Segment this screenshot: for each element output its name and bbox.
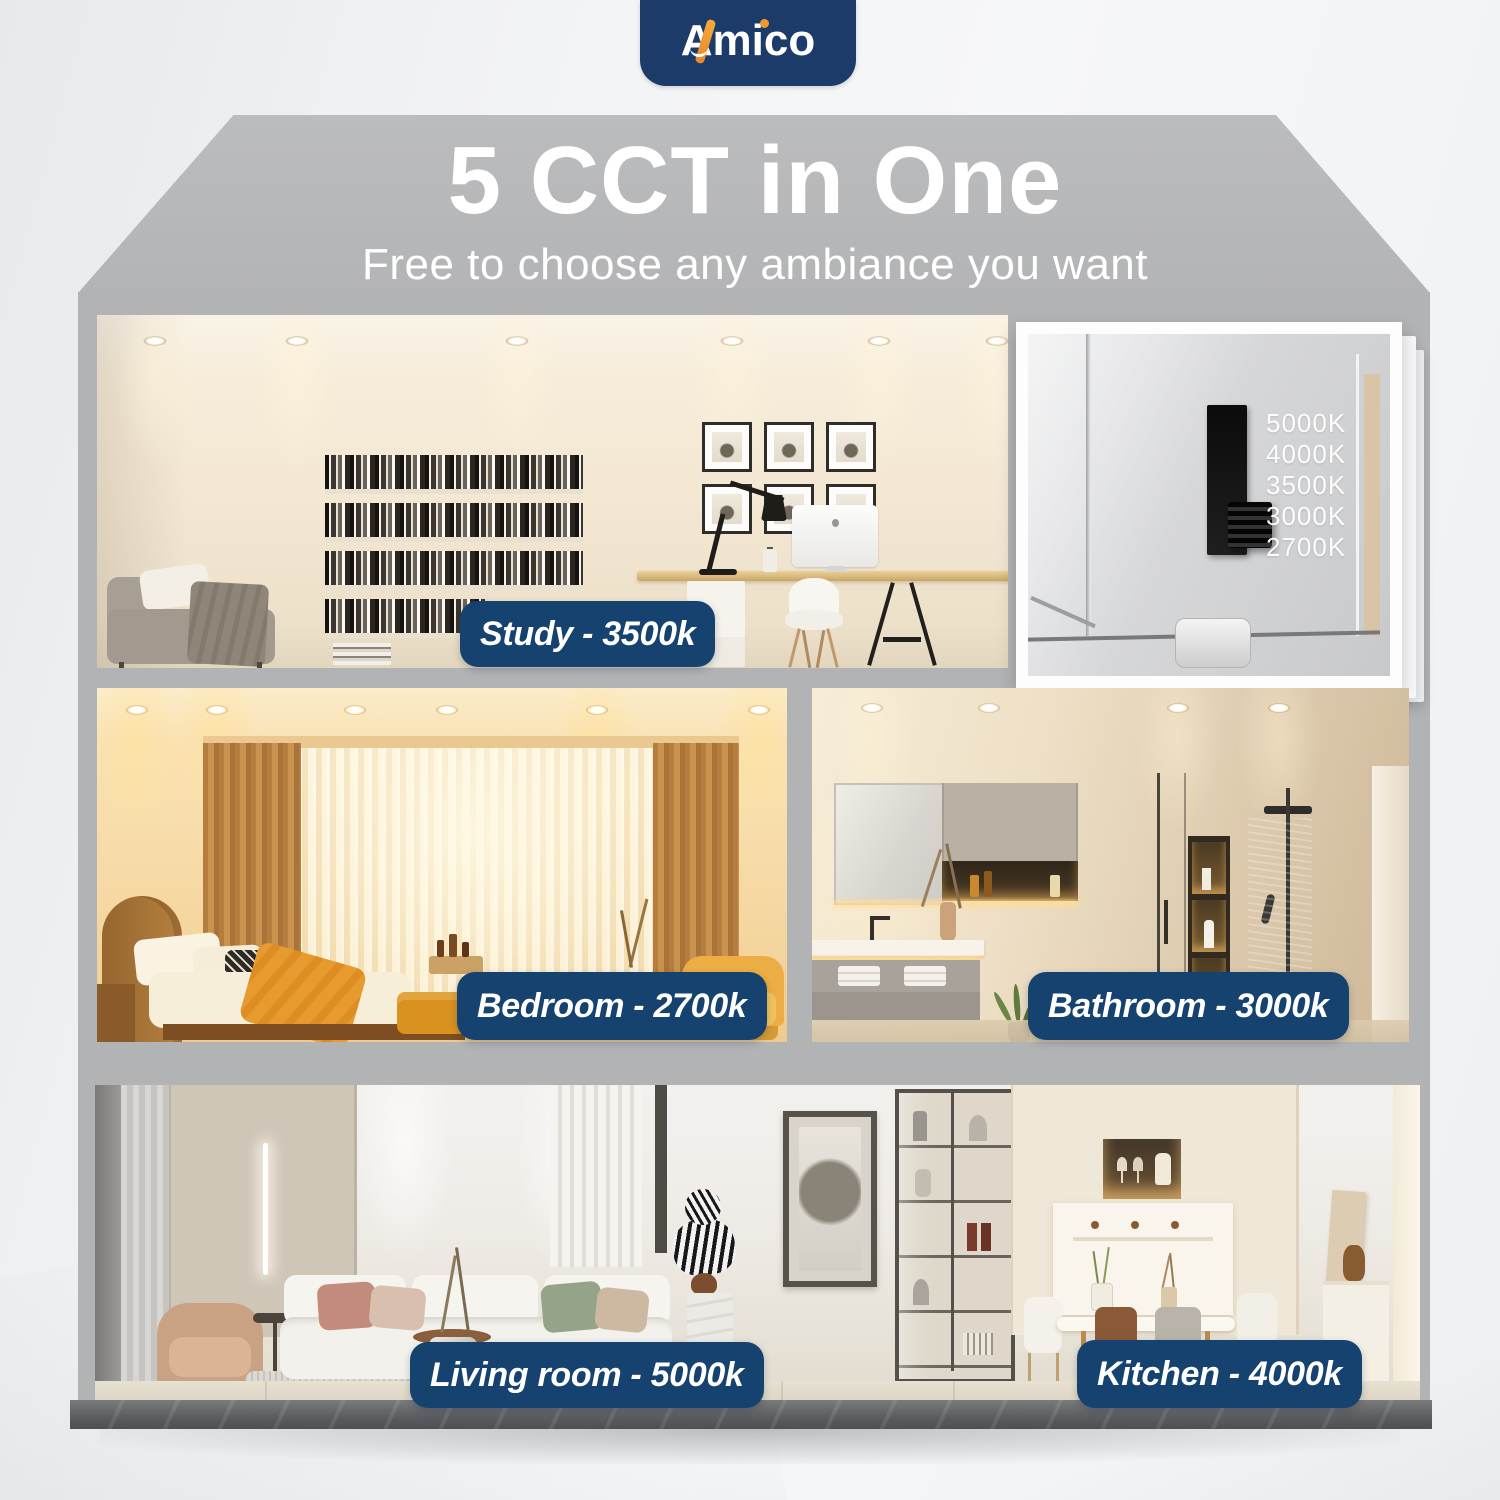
wine-glass: [1117, 1157, 1127, 1171]
wall-art-sketch: [799, 1127, 861, 1271]
wine-glass-stem: [1121, 1171, 1123, 1183]
bookshelf-row: [325, 551, 583, 590]
wall-frame: [826, 422, 876, 472]
towel-stack: [838, 966, 880, 986]
dining-table-top: [1057, 1317, 1235, 1331]
cct-option-list: 5000K 4000K 3500K 3000K 2700K: [1266, 408, 1376, 563]
bathroom-cabinet-doors: [942, 783, 1078, 861]
monitor-apple-logo: [832, 519, 839, 527]
cabinet-item: [963, 1333, 993, 1355]
study-sofa-leg: [257, 662, 262, 668]
chair-leg: [788, 628, 801, 668]
wall-frame: [702, 422, 752, 472]
kitchen-display-cabinet: [895, 1089, 1015, 1383]
niche-bottle: [1202, 868, 1211, 890]
living-slat-panel: [550, 1085, 642, 1267]
kitchen-lighted-niche: [1103, 1139, 1181, 1199]
panel-flower-stem: [1102, 1247, 1110, 1287]
wall-sconce-light: [263, 1143, 268, 1275]
chair-leg: [816, 630, 826, 668]
panel-hook: [1091, 1221, 1099, 1229]
living-room-label: Living room - 5000k: [410, 1342, 764, 1408]
niche-vase: [1155, 1153, 1171, 1185]
sofa-pillow: [594, 1286, 650, 1333]
bathroom-under-cabinet-glow: [834, 900, 1078, 907]
study-monitor: [792, 505, 878, 567]
living-wall-art: [783, 1111, 877, 1287]
cabinet-item: [981, 1223, 991, 1251]
living-dark-slat: [655, 1085, 667, 1253]
cabinet-mullion: [951, 1093, 954, 1371]
plant-leaf: [1013, 984, 1022, 1024]
bedroom-nightstand: [97, 984, 135, 1042]
sofa-pillow: [540, 1280, 604, 1333]
cct-option: 4000K: [1266, 439, 1376, 470]
decor-bottle: [462, 942, 469, 957]
reed-diffuser: [1169, 1253, 1175, 1289]
product-infographic: 5 CCT in One Free to choose any ambiance…: [0, 0, 1500, 1500]
bathroom-faucet-spout: [870, 916, 890, 920]
brand-logo-i-dot: [760, 19, 769, 28]
bathroom-label: Bathroom - 3000k: [1028, 972, 1349, 1040]
study-desk-trestle-bar: [883, 637, 921, 642]
brand-logo-text: Amico: [640, 16, 856, 66]
bedroom-label: Bedroom - 2700k: [457, 972, 767, 1040]
chair-seat: [785, 610, 843, 630]
lamp-base: [699, 569, 737, 575]
bathroom-right-pillar: [1370, 766, 1409, 1042]
decor-bottle: [449, 934, 457, 957]
lamp-arm: [706, 513, 726, 574]
zebra-vase: [691, 1273, 717, 1295]
diffuser-bottle: [1161, 1287, 1177, 1309]
bathroom-drawers: [812, 960, 980, 1020]
armchair-seat: [169, 1337, 251, 1377]
sofa-pillow: [316, 1281, 377, 1331]
niche-bottle: [970, 875, 979, 897]
junction-box-mount-clip: [1175, 618, 1251, 668]
panel-rail: [1073, 1237, 1213, 1241]
console-sculpture: [1343, 1245, 1365, 1281]
kitchen-right-wall: [1393, 1085, 1420, 1402]
headline: 5 CCT in One: [150, 126, 1360, 236]
brand-logo: Amico: [640, 0, 856, 86]
zebra-sculpture-head: [685, 1189, 721, 1225]
wall-frame: [764, 422, 814, 472]
cct-option: 3500K: [1266, 470, 1376, 501]
study-sofa: [107, 565, 275, 668]
towel-stack: [904, 966, 946, 986]
cct-option: 3000K: [1266, 501, 1376, 532]
study-pen-cup: [763, 549, 777, 572]
niche-bottle: [984, 871, 992, 897]
shower-glass-handle: [1164, 900, 1168, 944]
chair-leg: [802, 630, 812, 668]
kitchen-feature-panel: [1053, 1203, 1233, 1315]
cct-option: 5000K: [1266, 408, 1376, 439]
niche-bottle: [1204, 920, 1214, 948]
cabinet-item: [967, 1223, 977, 1251]
bathroom-cabinet-niche: [942, 861, 1078, 901]
wine-glass: [1133, 1157, 1143, 1171]
junction-box-seam: [1086, 334, 1091, 636]
living-window-frame: [95, 1085, 121, 1385]
panel-hook: [1131, 1221, 1139, 1229]
cabinet-item: [913, 1279, 929, 1305]
panel-hook: [1171, 1221, 1179, 1229]
niche-cell: [1192, 900, 1226, 952]
study-sofa-throw: [187, 581, 269, 667]
decor-bottle: [437, 940, 444, 957]
study-sofa-leg: [119, 662, 124, 668]
bookshelf-row: [325, 455, 583, 494]
cct-switch-inset: 5000K 4000K 3500K 3000K 2700K: [1016, 322, 1402, 688]
bathroom-vase: [940, 902, 956, 942]
niche-cell: [1192, 842, 1226, 894]
niche-bottle: [1050, 875, 1060, 897]
chair-leg: [826, 628, 839, 668]
subheadline: Free to choose any ambiance you want: [150, 240, 1360, 290]
bookshelf-floor-stack: [333, 643, 391, 665]
sofa-pillow: [368, 1285, 426, 1332]
wine-glass-stem: [1137, 1171, 1139, 1183]
cabinet-item: [915, 1169, 931, 1197]
kitchen-label: Kitchen - 4000k: [1077, 1340, 1362, 1408]
cabinet-item: [913, 1111, 927, 1141]
cabinet-item: [969, 1115, 987, 1141]
panel-flower-stem: [1093, 1251, 1100, 1287]
study-label: Study - 3500k: [460, 601, 715, 667]
cct-option: 2700K: [1266, 532, 1376, 563]
study-chair: [773, 578, 853, 668]
bookshelf-row: [325, 503, 583, 542]
bathroom-counter: [812, 940, 984, 956]
